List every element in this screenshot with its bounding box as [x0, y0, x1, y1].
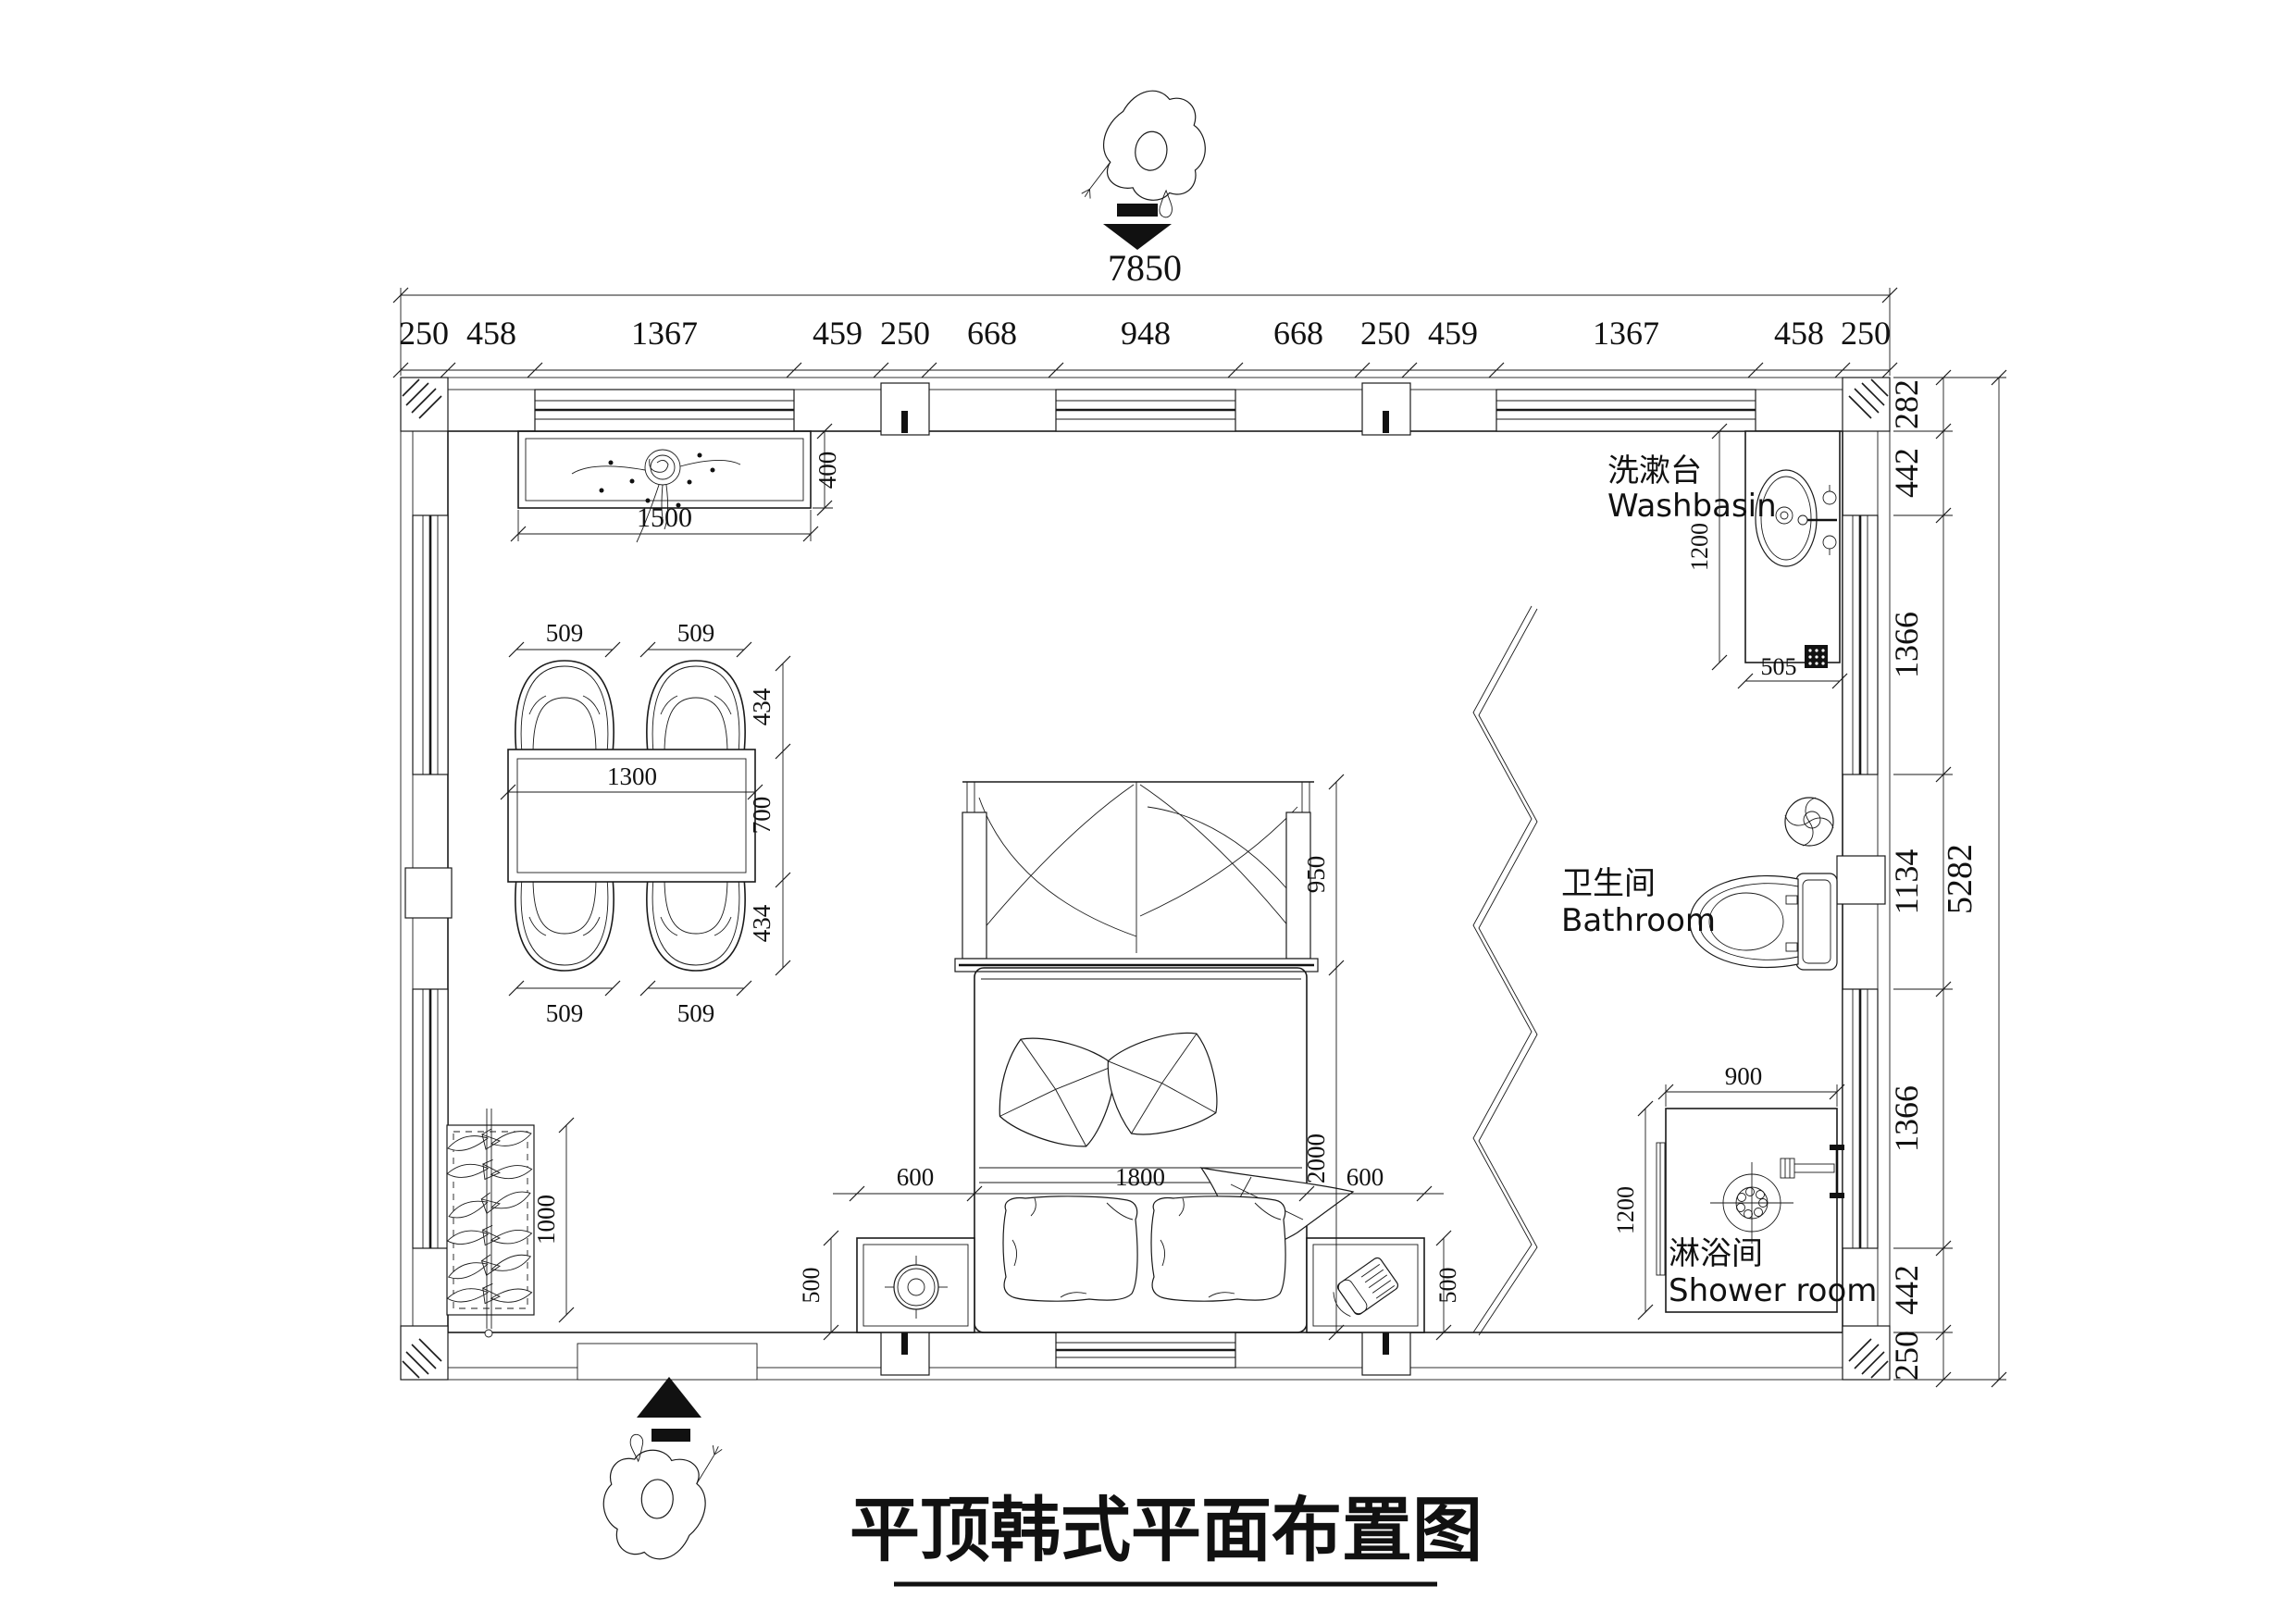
plant-console: 1500 400 — [511, 424, 841, 542]
dim-right-6: 250 — [1888, 1331, 1925, 1381]
shower-head-icon — [1781, 1145, 1844, 1198]
dim-right-2: 1366 — [1888, 612, 1925, 678]
exhaust-fan-icon — [1785, 798, 1833, 846]
nightstand-left — [857, 1238, 974, 1332]
dim-top-6: 948 — [1121, 315, 1171, 352]
dining-chair — [515, 661, 614, 753]
dining-chair — [515, 878, 614, 971]
dining-chair — [647, 661, 745, 753]
entry-bottom — [602, 1377, 722, 1561]
dim-top-12: 250 — [1841, 315, 1891, 352]
dim-counter-width: 505 — [1761, 653, 1797, 680]
label-bathroom-en: Bathroom — [1561, 902, 1716, 939]
right-dimension-chain: 282 442 1366 1134 1366 442 250 5282 — [1888, 370, 2006, 1387]
window-top-right — [1496, 390, 1756, 431]
corner-column-bottom-left — [401, 1326, 448, 1380]
throw-pillow — [989, 1027, 1123, 1155]
floor-plan-canvas: 7850 250 458 1367 459 250 668 948 668 25… — [0, 0, 2296, 1623]
label-shower-en: Shower room — [1669, 1272, 1877, 1309]
window-left-lower — [413, 989, 448, 1248]
dim-total-height: 5282 — [1941, 844, 1980, 914]
dim-total-width: 7850 — [1108, 247, 1182, 289]
dim-shower-depth: 1200 — [1612, 1186, 1639, 1234]
dim-right-4: 1366 — [1888, 1085, 1925, 1152]
window-left-upper — [413, 515, 448, 774]
pillow — [1151, 1196, 1285, 1301]
top-dimension-chain: 7850 250 458 1367 459 250 668 948 668 25… — [393, 247, 1897, 378]
person-figure-bottom — [602, 1433, 722, 1561]
dim-right-3: 1134 — [1888, 849, 1925, 915]
dim-bed-length: 2000 — [1302, 1134, 1330, 1183]
dim-chair-width: 509 — [546, 619, 584, 647]
nightstand-right — [1307, 1238, 1424, 1332]
drawing-title: 平顶韩式平面布置图 — [850, 1489, 1483, 1584]
dim-chair-width: 509 — [546, 999, 584, 1027]
dim-top-2: 1367 — [631, 315, 698, 352]
glass-panel — [1657, 1143, 1665, 1275]
bed-post — [962, 812, 987, 959]
title-text: 平顶韩式平面布置图 — [850, 1489, 1483, 1571]
dining-chair — [647, 878, 745, 971]
window-bottom — [1056, 1332, 1235, 1368]
dim-top-7: 668 — [1273, 315, 1323, 352]
dim-counter-depth: 1200 — [1686, 523, 1713, 571]
dim-top-9: 459 — [1428, 315, 1478, 352]
corner-column-top-left — [401, 378, 448, 431]
entry-arrow-up-icon — [637, 1377, 701, 1442]
window-top-center — [1056, 390, 1235, 431]
corner-column-bottom-right — [1843, 1326, 1890, 1380]
dim-chair-depth: 434 — [748, 904, 776, 942]
folding-partition — [1473, 606, 1537, 1335]
entry-door — [577, 1344, 757, 1380]
throw-pillow — [1101, 1025, 1225, 1143]
pillow — [1003, 1196, 1137, 1301]
floor-plan-drawing: 7850 250 458 1367 459 250 668 948 668 25… — [0, 0, 2296, 1623]
label-bathroom-zh: 卫生间 — [1561, 865, 1656, 902]
dim-nightstand-width: 600 — [1347, 1163, 1384, 1191]
window-right-lower — [1843, 989, 1878, 1248]
dim-chair-width: 509 — [677, 619, 715, 647]
clothes-rack: 1000 — [447, 1109, 574, 1337]
corner-column-top-right — [1843, 378, 1890, 431]
dim-console-width: 1500 — [637, 502, 692, 533]
label-shower-zh: 淋浴间 — [1669, 1235, 1763, 1272]
dim-top-5: 668 — [967, 315, 1017, 352]
dim-top-1: 458 — [466, 315, 516, 352]
dining-set: 509 509 509 509 434 700 434 1300 — [501, 619, 790, 1027]
dim-console-depth: 400 — [813, 452, 841, 489]
dim-chair-width: 509 — [677, 999, 715, 1027]
washbasin-area: 洗漱台 Washbasin 1200 505 — [1607, 424, 1847, 688]
dim-top-8: 250 — [1360, 315, 1410, 352]
window-top-left — [535, 390, 794, 431]
dim-top-4: 250 — [880, 315, 930, 352]
dim-nightstand-width: 600 — [897, 1163, 935, 1191]
dim-top-11: 458 — [1774, 315, 1824, 352]
dim-right-0: 282 — [1888, 379, 1925, 429]
dim-nightstand-depth: 500 — [1434, 1268, 1461, 1304]
dim-canopy-depth: 950 — [1302, 856, 1330, 894]
console-dims: 1500 400 — [511, 424, 841, 541]
dim-right-1: 442 — [1888, 448, 1925, 498]
dim-top-0: 250 — [399, 315, 449, 352]
dim-table-width: 1300 — [607, 762, 657, 790]
dim-top-10: 1367 — [1593, 315, 1659, 352]
dim-rack-length: 1000 — [532, 1195, 560, 1245]
entry-top — [1080, 83, 1212, 250]
label-washbasin-zh: 洗漱台 — [1607, 452, 1702, 489]
window-right-upper — [1843, 515, 1878, 774]
dim-shower-width: 900 — [1725, 1062, 1763, 1090]
dim-chair-depth: 434 — [748, 688, 776, 725]
dim-bed-width: 1800 — [1115, 1163, 1165, 1191]
rack-dim: 1000 — [532, 1118, 574, 1322]
floor-drain-square-icon — [1805, 645, 1828, 668]
shower-area: 淋浴间 Shower room 900 1200 — [1612, 1062, 1877, 1319]
dim-nightstand-depth: 500 — [798, 1268, 825, 1304]
label-washbasin-en: Washbasin — [1607, 488, 1777, 525]
bed-canopy — [955, 782, 1318, 972]
bathroom-area: 卫生间 Bathroom — [1561, 798, 1837, 970]
entry-arrow-down-icon — [1103, 204, 1172, 250]
dim-top-3: 459 — [813, 315, 863, 352]
person-figure-top — [1080, 83, 1212, 222]
bed-group: 600 1800 600 950 2000 500 500 — [798, 774, 1461, 1340]
dim-right-5: 442 — [1888, 1265, 1925, 1315]
dim-table-depth: 700 — [748, 797, 776, 835]
